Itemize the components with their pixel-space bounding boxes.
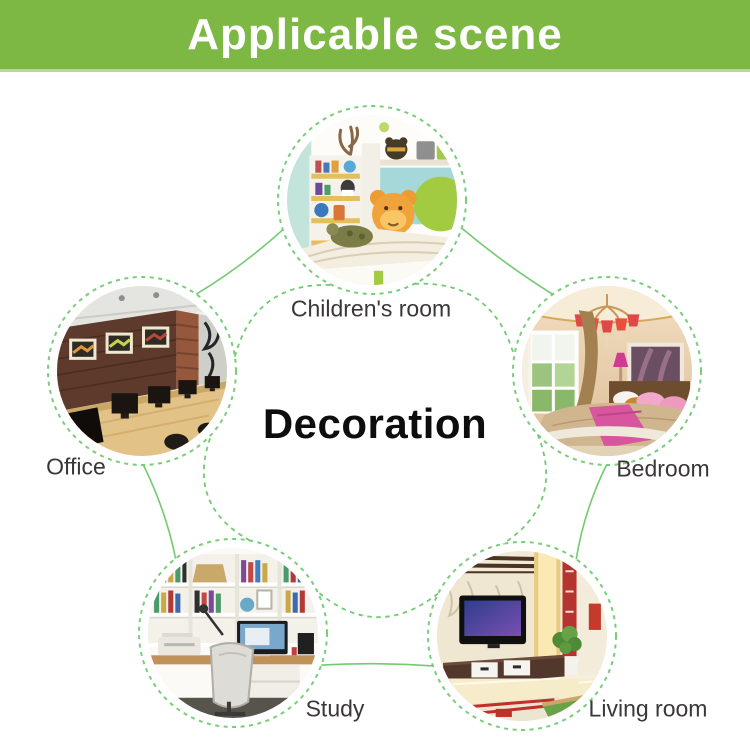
window (528, 331, 579, 414)
brick-column (176, 310, 198, 389)
wall-picture (627, 343, 684, 388)
bedroom-illustration (522, 286, 692, 456)
red-cup (292, 647, 297, 655)
office-illustration (57, 286, 227, 456)
bedroom-photo (522, 286, 692, 456)
bee-plush (385, 137, 407, 159)
study-photo (148, 548, 318, 718)
label-bedroom: Bedroom (616, 456, 709, 483)
childrens-room-photo (287, 115, 457, 285)
office-chair (211, 643, 254, 714)
tv (459, 596, 526, 649)
office-photo (57, 286, 227, 456)
study-illustration (148, 548, 318, 718)
living-room-photo (437, 551, 607, 721)
label-office: Office (46, 454, 106, 481)
applicable-scene-diagram: Children's room Bedroom Living room Stud… (0, 0, 750, 750)
label-living-room: Living room (589, 696, 708, 723)
living-room-illustration (437, 551, 607, 721)
center-title: Decoration (263, 400, 487, 448)
label-childrens-room: Children's room (291, 296, 451, 323)
childrens-room-illustration (287, 115, 457, 285)
label-study: Study (306, 696, 365, 723)
